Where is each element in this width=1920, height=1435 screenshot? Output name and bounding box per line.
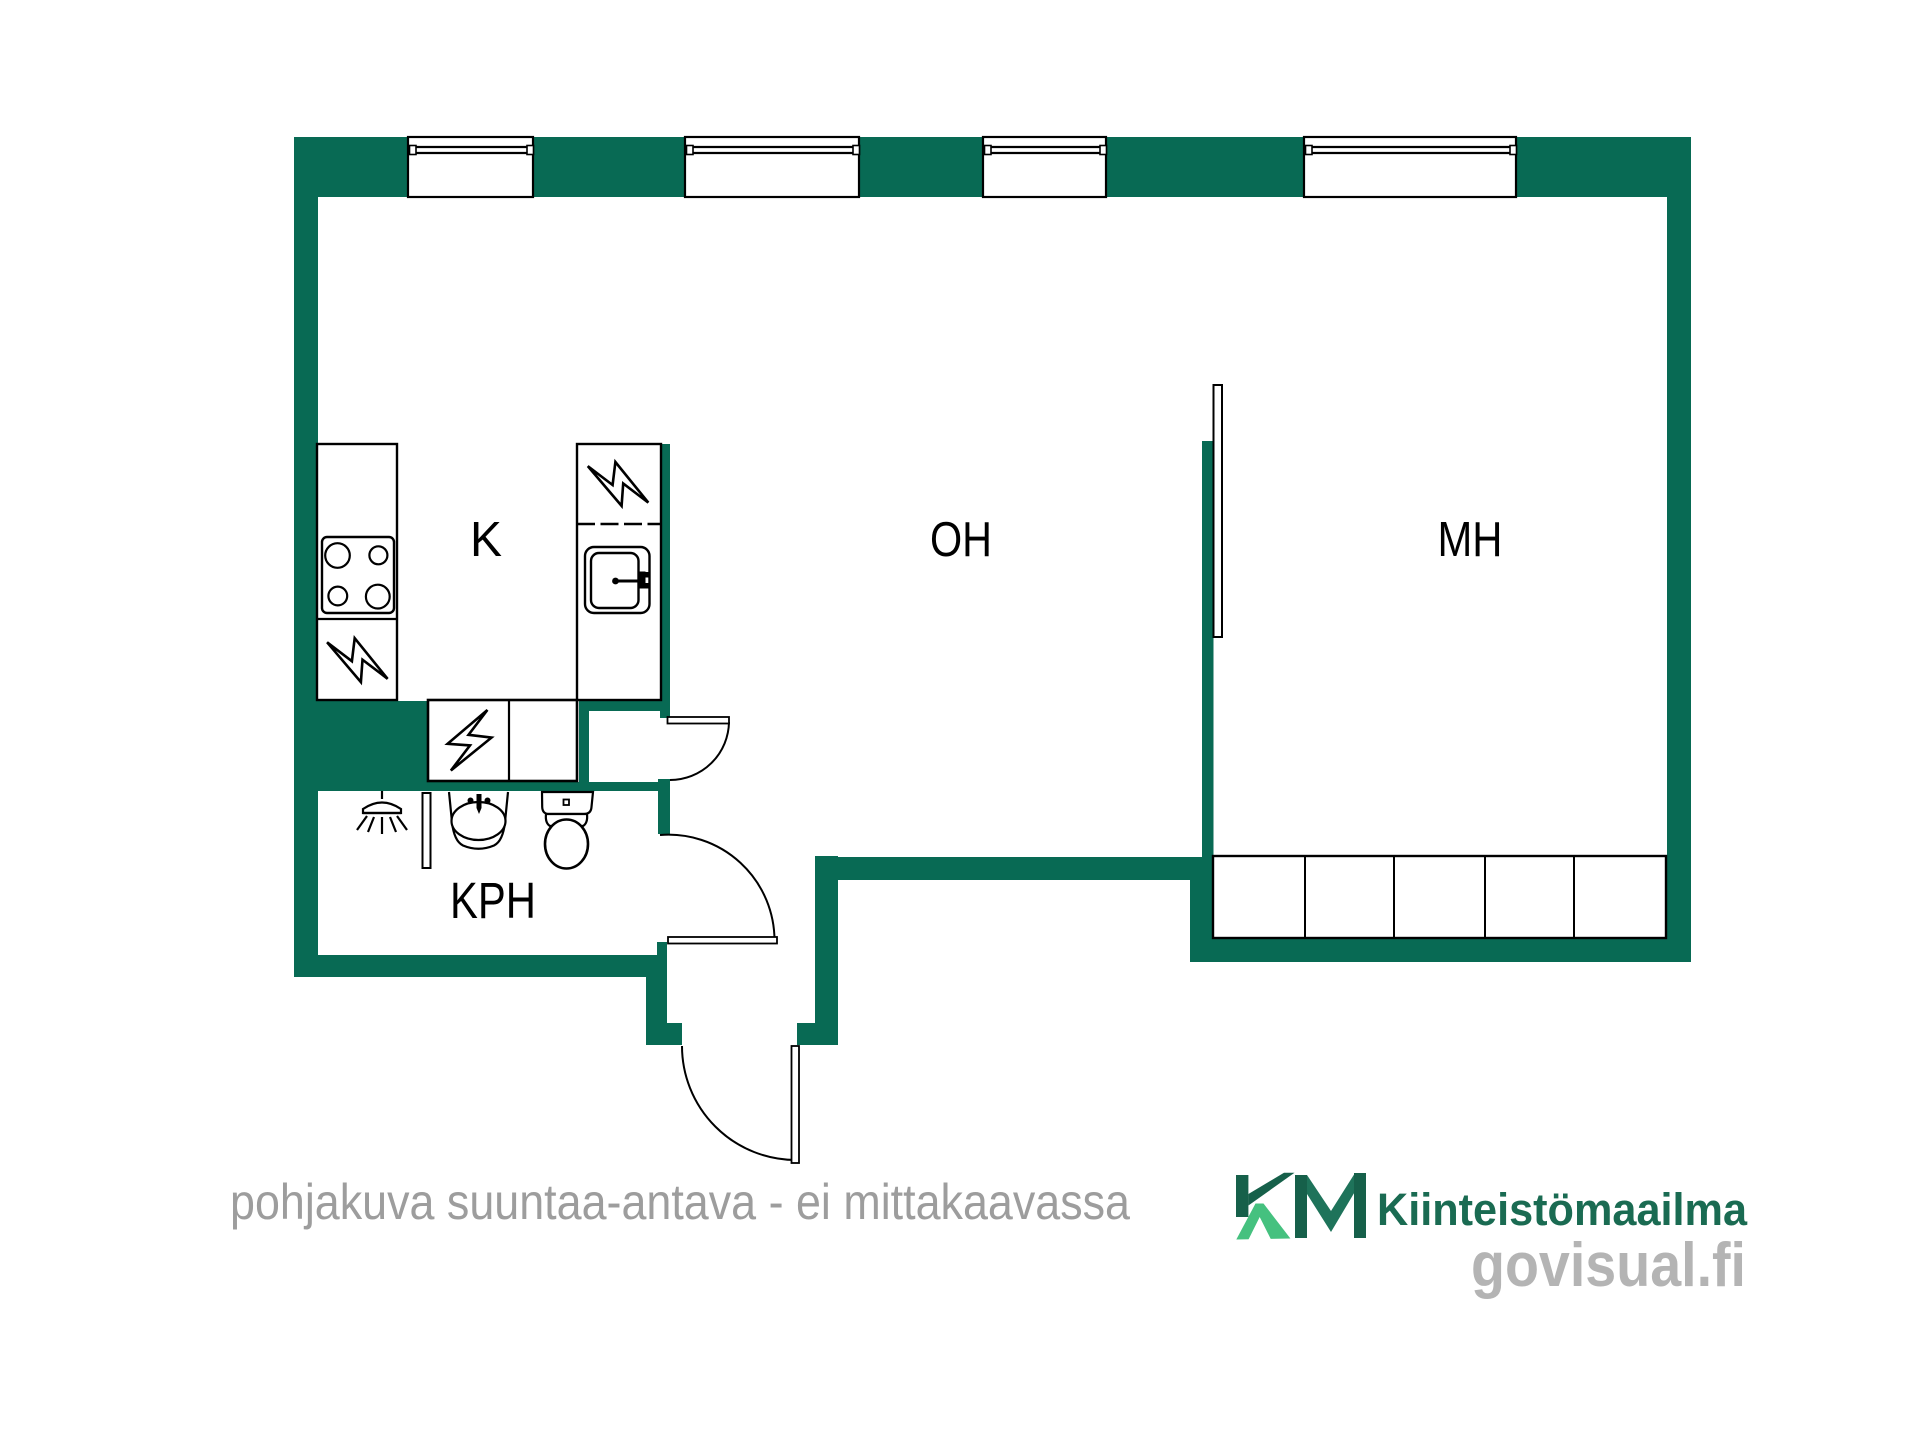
svg-text:OH: OH: [930, 513, 992, 567]
svg-text:KPH: KPH: [450, 872, 536, 929]
svg-text:govisual.fi: govisual.fi: [1471, 1231, 1746, 1300]
svg-text:K: K: [470, 513, 502, 567]
svg-text:pohjakuva suuntaa-antava - ei: pohjakuva suuntaa-antava - ei mittakaava…: [230, 1174, 1130, 1230]
svg-text:MH: MH: [1438, 513, 1503, 567]
svg-text:Kiinteistömaailma: Kiinteistömaailma: [1377, 1184, 1748, 1235]
